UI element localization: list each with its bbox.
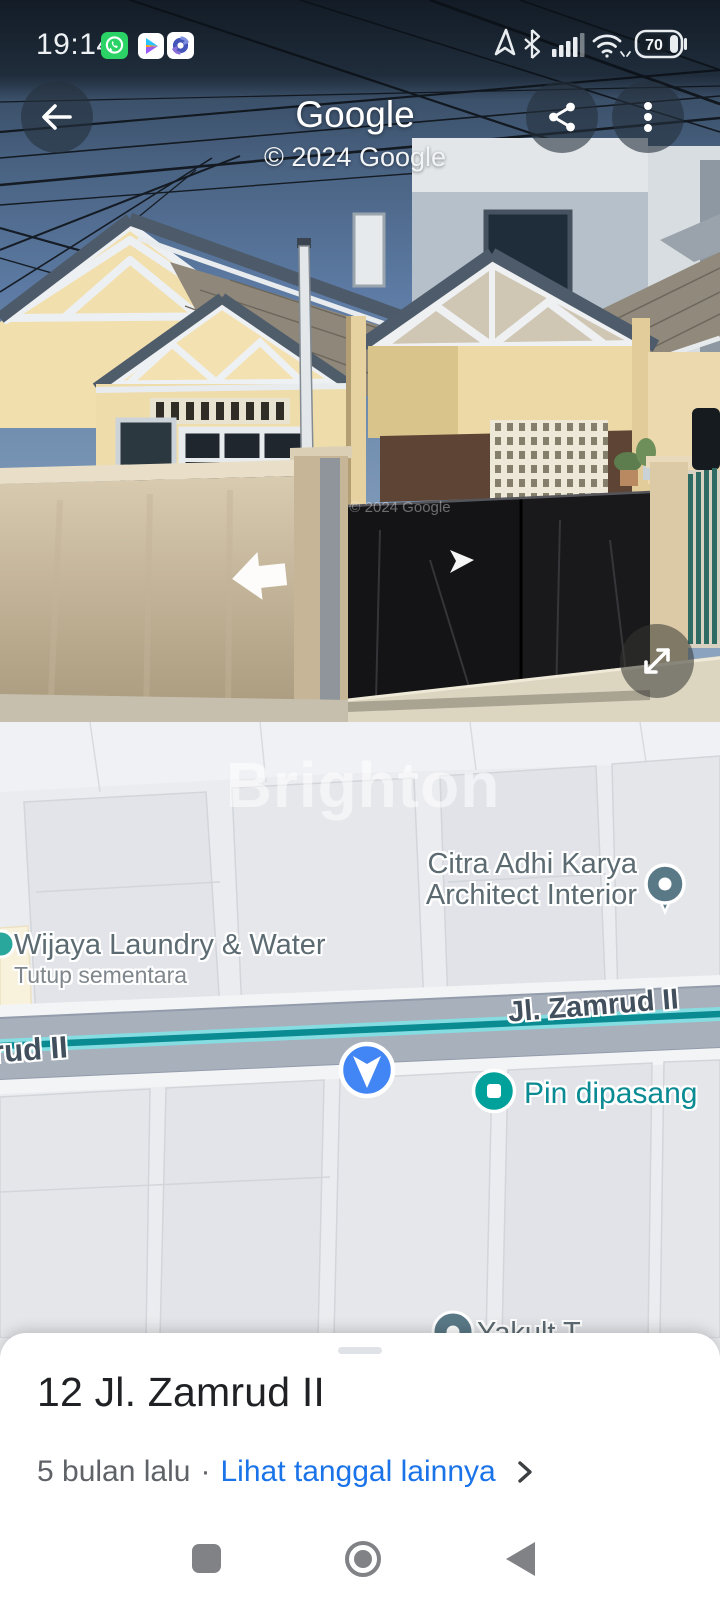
history-row: 5 bulan lalu · Lihat tanggal lainnya xyxy=(37,1455,536,1489)
nav-back-button[interactable] xyxy=(506,1542,535,1576)
expand-icon xyxy=(638,642,676,680)
dropped-pin[interactable] xyxy=(474,1071,515,1112)
chevron-right-icon xyxy=(514,1457,536,1487)
nav-home-dot xyxy=(354,1550,372,1568)
share-button[interactable] xyxy=(526,81,598,153)
whatsapp-icon xyxy=(101,32,128,59)
sheet-title: 12 Jl. Zamrud II xyxy=(37,1369,325,1416)
time-ago-text: 5 bulan lalu xyxy=(37,1455,190,1489)
phone-screen: © 2024 Google 19:14 xyxy=(0,0,720,1600)
back-button[interactable] xyxy=(21,81,93,153)
poi-status-wijaya: Tutup sementara xyxy=(14,962,187,989)
copyright-text: © 2024 Google xyxy=(0,142,710,173)
nav-home-button[interactable] xyxy=(345,1541,381,1577)
separator-dot: · xyxy=(200,1455,210,1489)
play-store-icon xyxy=(138,33,164,59)
drag-handle[interactable] xyxy=(338,1347,382,1354)
share-icon xyxy=(545,100,579,134)
app-notification-icon xyxy=(167,32,194,59)
poi-label-citra[interactable]: Citra Adhi Karya Architect Interior xyxy=(426,849,637,911)
expand-button[interactable] xyxy=(620,624,694,698)
streetview-position-marker[interactable] xyxy=(341,1044,393,1096)
poi-pin-wijaya[interactable] xyxy=(0,931,14,957)
svg-text:70: 70 xyxy=(645,37,663,54)
nav-recents-button[interactable] xyxy=(192,1544,221,1573)
battery-icon: 70 xyxy=(636,31,687,57)
location-icon xyxy=(496,30,514,54)
dropped-pin-label[interactable]: Pin dipasang xyxy=(524,1077,697,1111)
more-vert-icon xyxy=(631,100,665,134)
page-title: Google xyxy=(0,94,710,136)
bluetooth-icon xyxy=(525,30,539,58)
map-watermark: Brighton xyxy=(198,748,528,822)
back-arrow-icon xyxy=(38,98,76,136)
signal-icon xyxy=(552,33,585,57)
status-bar: 19:14 xyxy=(0,0,720,76)
status-icons: 70 xyxy=(488,26,688,62)
more-options-button[interactable] xyxy=(612,81,684,153)
streetview-watermark: © 2024 Google xyxy=(349,499,450,516)
wifi-icon xyxy=(594,36,630,58)
see-other-dates-link[interactable]: Lihat tanggal lainnya xyxy=(220,1455,495,1489)
road-label-partial: rud II xyxy=(0,1029,69,1070)
poi-label-wijaya[interactable]: Wijaya Laundry & Water xyxy=(14,930,326,961)
